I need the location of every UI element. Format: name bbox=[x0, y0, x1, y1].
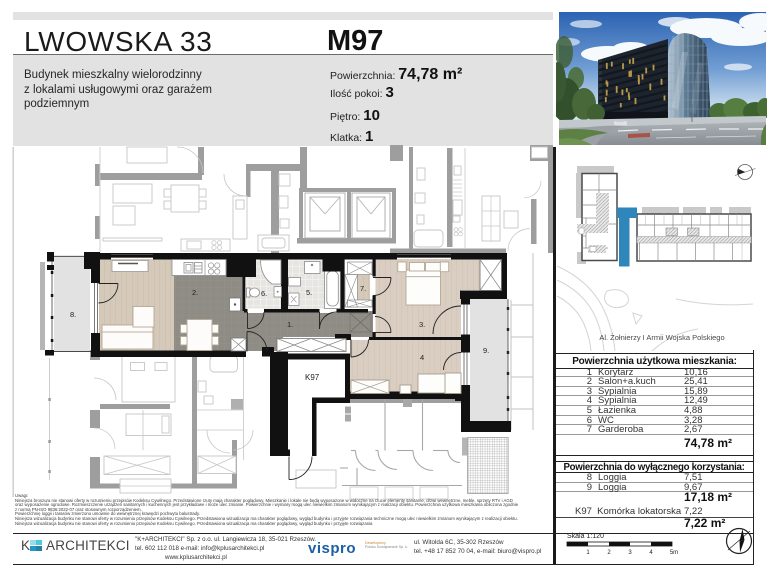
svg-text:9.: 9. bbox=[483, 346, 489, 355]
svg-text:6.: 6. bbox=[261, 289, 267, 298]
svg-text:4: 4 bbox=[649, 550, 653, 556]
svg-text:5.: 5. bbox=[306, 288, 312, 297]
svg-text:1.: 1. bbox=[287, 320, 293, 329]
svg-text:2: 2 bbox=[607, 550, 611, 556]
svg-text:2.: 2. bbox=[192, 288, 198, 297]
svg-text:7.: 7. bbox=[360, 284, 366, 293]
svg-text:3.: 3. bbox=[419, 320, 425, 329]
svg-text:4: 4 bbox=[420, 353, 424, 362]
svg-text:8.: 8. bbox=[70, 310, 76, 319]
svg-text:3: 3 bbox=[628, 550, 632, 556]
svg-text:5m: 5m bbox=[670, 550, 678, 556]
svg-text:1: 1 bbox=[586, 550, 590, 556]
svg-text:K97: K97 bbox=[305, 373, 320, 382]
